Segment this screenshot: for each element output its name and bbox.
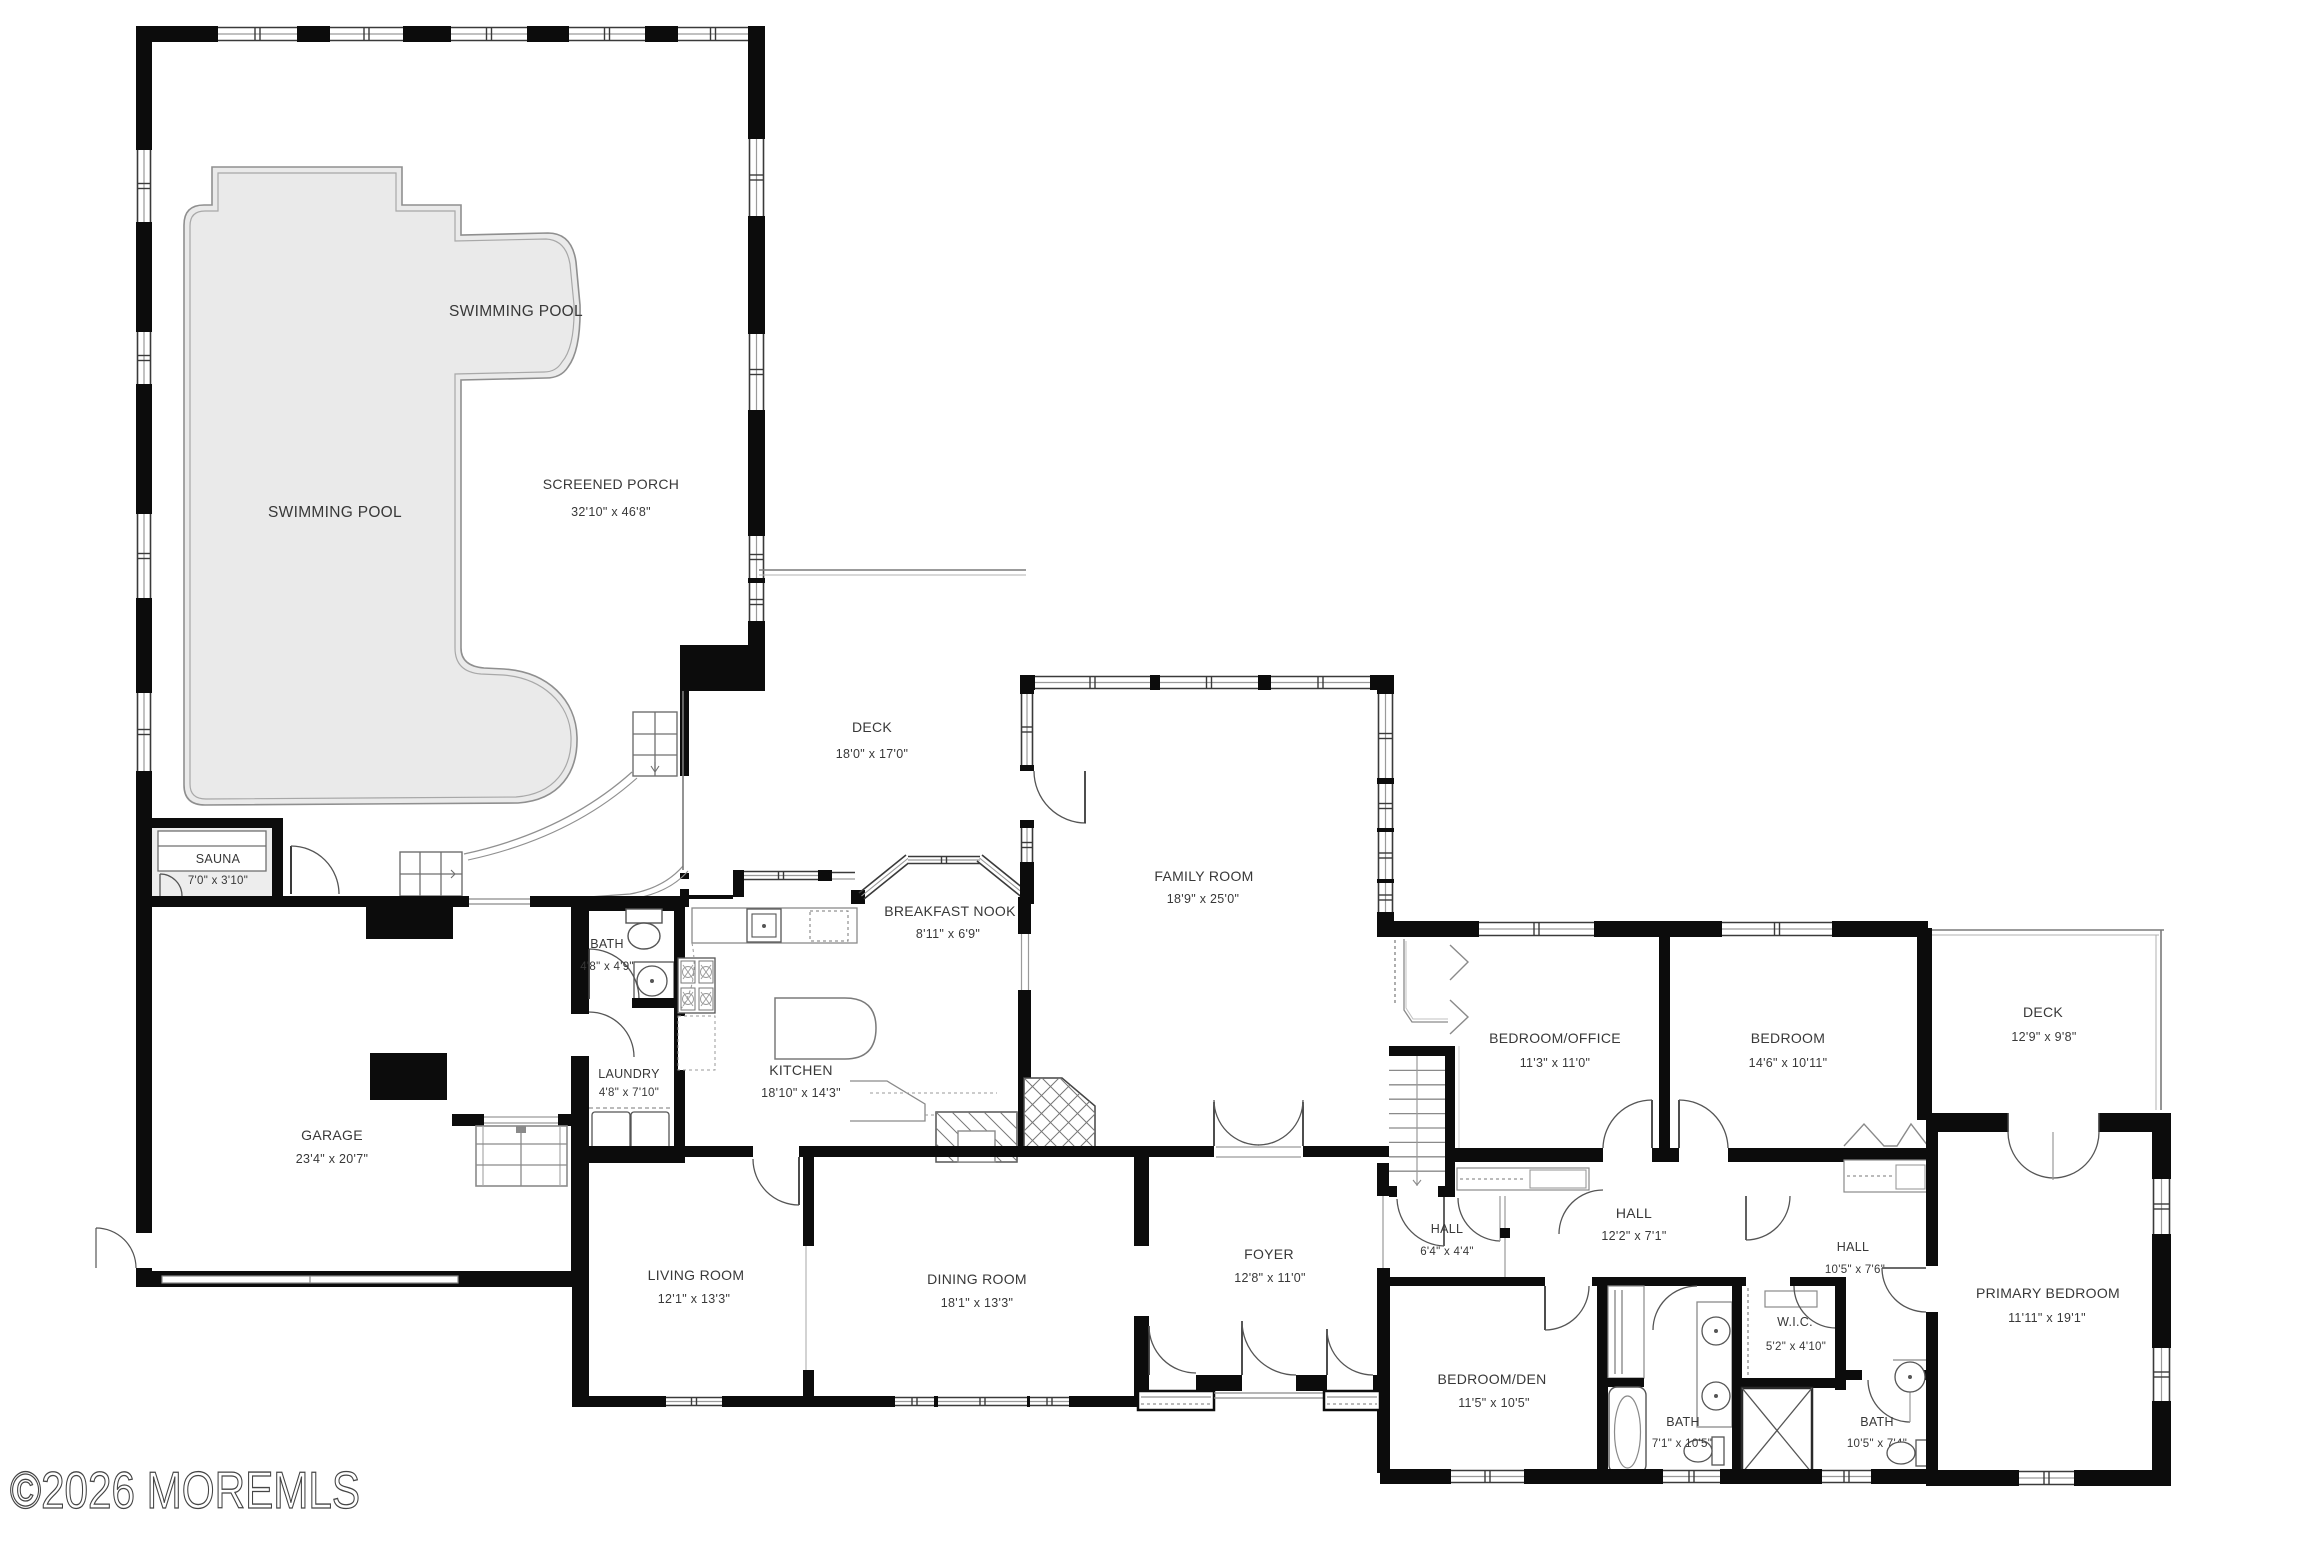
- svg-text:18'9" x 25'0": 18'9" x 25'0": [1167, 892, 1239, 906]
- svg-text:BATH: BATH: [1666, 1415, 1700, 1429]
- svg-text:BATH: BATH: [590, 937, 624, 951]
- svg-text:5'2" x 4'10": 5'2" x 4'10": [1766, 1341, 1826, 1353]
- svg-text:18'1" x 13'3": 18'1" x 13'3": [941, 1296, 1013, 1310]
- svg-text:HALL: HALL: [1837, 1240, 1869, 1254]
- svg-text:10'5" x 7'6": 10'5" x 7'6": [1825, 1264, 1885, 1276]
- svg-text:KITCHEN: KITCHEN: [769, 1062, 833, 1078]
- svg-text:SAUNA: SAUNA: [196, 852, 241, 866]
- svg-text:BEDROOM: BEDROOM: [1751, 1030, 1825, 1046]
- svg-text:©2026 MOREMLS: ©2026 MOREMLS: [10, 1462, 360, 1520]
- svg-text:8'11" x 6'9": 8'11" x 6'9": [916, 927, 980, 941]
- svg-text:HALL: HALL: [1431, 1222, 1463, 1236]
- svg-text:FAMILY ROOM: FAMILY ROOM: [1154, 868, 1253, 884]
- svg-text:7'1" x 10'5": 7'1" x 10'5": [1652, 1438, 1712, 1450]
- svg-text:4'8" x 4'9": 4'8" x 4'9": [580, 961, 634, 973]
- svg-text:LAUNDRY: LAUNDRY: [598, 1067, 660, 1081]
- svg-text:14'6" x 10'11": 14'6" x 10'11": [1749, 1056, 1828, 1070]
- svg-text:DECK: DECK: [852, 719, 892, 735]
- svg-text:18'0" x 17'0": 18'0" x 17'0": [836, 747, 908, 761]
- svg-text:12'9" x 9'8": 12'9" x 9'8": [2011, 1030, 2076, 1044]
- svg-text:12'8" x 11'0": 12'8" x 11'0": [1234, 1271, 1306, 1285]
- svg-text:DECK: DECK: [2023, 1004, 2063, 1020]
- svg-text:PRIMARY BEDROOM: PRIMARY BEDROOM: [1976, 1285, 2120, 1301]
- svg-text:HALL: HALL: [1616, 1205, 1652, 1221]
- svg-text:BREAKFAST NOOK: BREAKFAST NOOK: [884, 903, 1016, 919]
- svg-text:7'0" x 3'10": 7'0" x 3'10": [188, 875, 248, 887]
- svg-text:BEDROOM/OFFICE: BEDROOM/OFFICE: [1489, 1030, 1621, 1046]
- svg-text:BATH: BATH: [1860, 1415, 1894, 1429]
- svg-text:12'1" x 13'3": 12'1" x 13'3": [658, 1292, 730, 1306]
- svg-text:BEDROOM/DEN: BEDROOM/DEN: [1437, 1371, 1546, 1387]
- svg-text:FOYER: FOYER: [1244, 1246, 1294, 1262]
- svg-text:4'8" x 7'10": 4'8" x 7'10": [599, 1087, 659, 1099]
- svg-text:18'10" x 14'3": 18'10" x 14'3": [761, 1086, 841, 1100]
- svg-text:12'2" x 7'1": 12'2" x 7'1": [1601, 1229, 1666, 1243]
- svg-text:23'4" x 20'7": 23'4" x 20'7": [296, 1152, 368, 1166]
- svg-text:SCREENED PORCH: SCREENED PORCH: [543, 476, 679, 492]
- svg-text:11'3" x 11'0": 11'3" x 11'0": [1520, 1056, 1591, 1070]
- svg-text:LIVING ROOM: LIVING ROOM: [648, 1267, 745, 1283]
- svg-text:GARAGE: GARAGE: [301, 1127, 363, 1143]
- svg-text:DINING ROOM: DINING ROOM: [927, 1271, 1027, 1287]
- svg-text:SWIMMING POOL: SWIMMING POOL: [268, 504, 402, 521]
- svg-text:SWIMMING POOL: SWIMMING POOL: [449, 303, 583, 320]
- svg-text:11'5" x 10'5": 11'5" x 10'5": [1458, 1396, 1530, 1410]
- svg-text:11'11" x 19'1": 11'11" x 19'1": [2008, 1311, 2086, 1325]
- svg-text:32'10" x 46'8": 32'10" x 46'8": [571, 505, 651, 519]
- svg-text:6'4" x 4'4": 6'4" x 4'4": [1420, 1246, 1474, 1258]
